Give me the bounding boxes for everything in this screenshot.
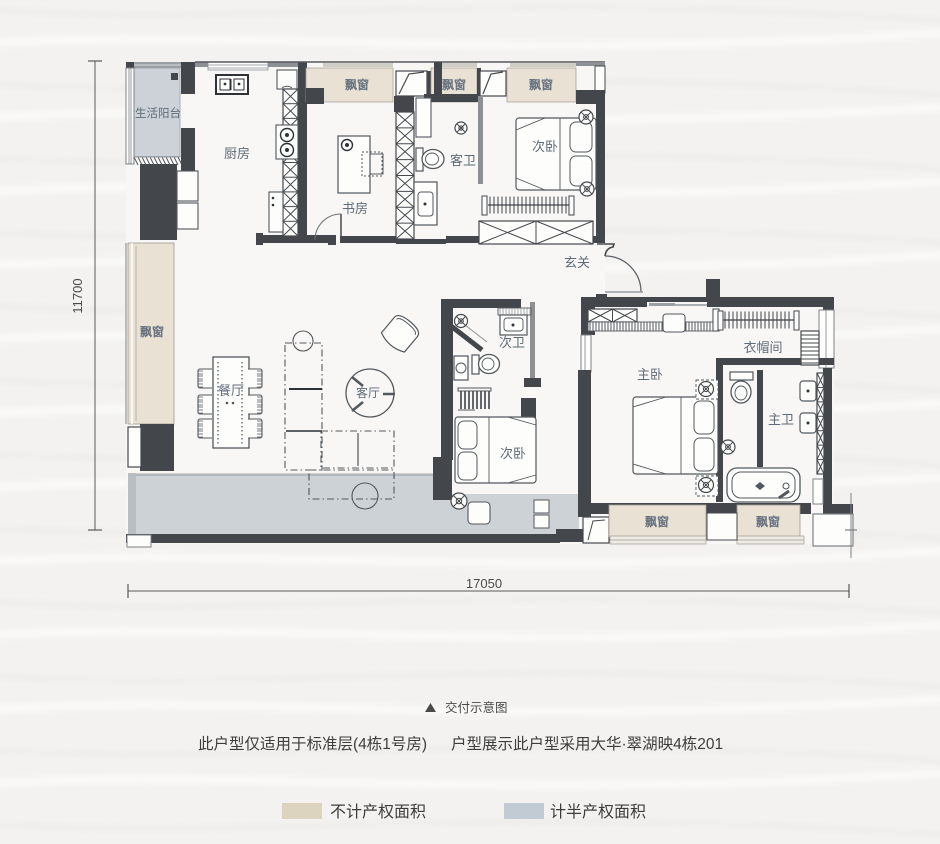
svg-text:17050: 17050 [466,576,502,591]
svg-text:玄关: 玄关 [564,255,590,270]
svg-text:此户型仅适用于标准层(4栋1号房): 此户型仅适用于标准层(4栋1号房) [198,735,427,753]
svg-text:飘窗: 飘窗 [756,514,780,529]
svg-text:客厅: 客厅 [356,385,380,400]
svg-text:交付示意图: 交付示意图 [445,700,508,715]
svg-text:主卫: 主卫 [768,412,794,427]
svg-text:飘窗: 飘窗 [345,77,369,92]
svg-text:客卫: 客卫 [450,153,476,168]
svg-text:计半产权面积: 计半产权面积 [550,803,646,821]
svg-text:不计产权面积: 不计产权面积 [330,803,426,821]
svg-text:飘窗: 飘窗 [645,514,669,529]
svg-text:飘窗: 飘窗 [529,77,553,92]
svg-text:厨房: 厨房 [224,146,250,161]
svg-text:户型展示此户型采用大华·翠湖映4栋201: 户型展示此户型采用大华·翠湖映4栋201 [451,735,723,753]
svg-text:餐厅: 餐厅 [218,383,244,398]
svg-text:书房: 书房 [342,201,368,216]
svg-text:11700: 11700 [70,278,85,313]
svg-text:次卧: 次卧 [532,139,558,154]
svg-text:飘窗: 飘窗 [442,77,466,92]
svg-text:主卧: 主卧 [637,367,663,382]
svg-text:次卧: 次卧 [500,446,526,461]
svg-text:生活阳台: 生活阳台 [135,106,181,120]
svg-text:衣帽间: 衣帽间 [743,340,782,355]
svg-text:飘窗: 飘窗 [140,324,164,339]
svg-text:次卫: 次卫 [499,335,525,350]
